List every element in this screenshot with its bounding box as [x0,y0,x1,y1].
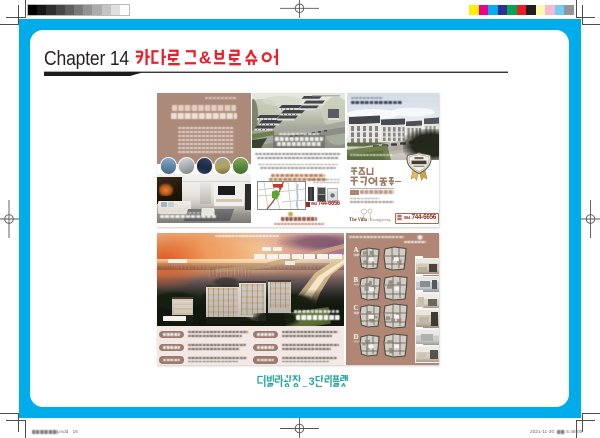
svg-text:&: & [198,48,211,67]
svg-text:3: 3 [309,376,315,387]
